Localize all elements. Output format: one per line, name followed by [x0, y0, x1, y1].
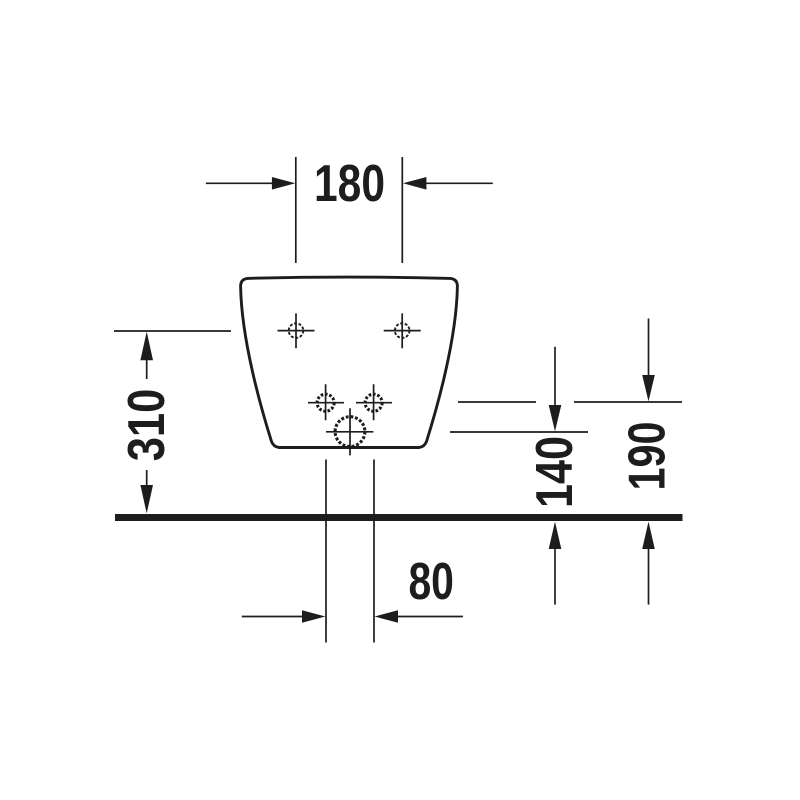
svg-text:180: 180: [314, 154, 385, 212]
svg-text:310: 310: [117, 389, 175, 462]
svg-text:80: 80: [408, 552, 454, 610]
svg-text:140: 140: [525, 436, 583, 508]
svg-text:190: 190: [618, 422, 676, 491]
